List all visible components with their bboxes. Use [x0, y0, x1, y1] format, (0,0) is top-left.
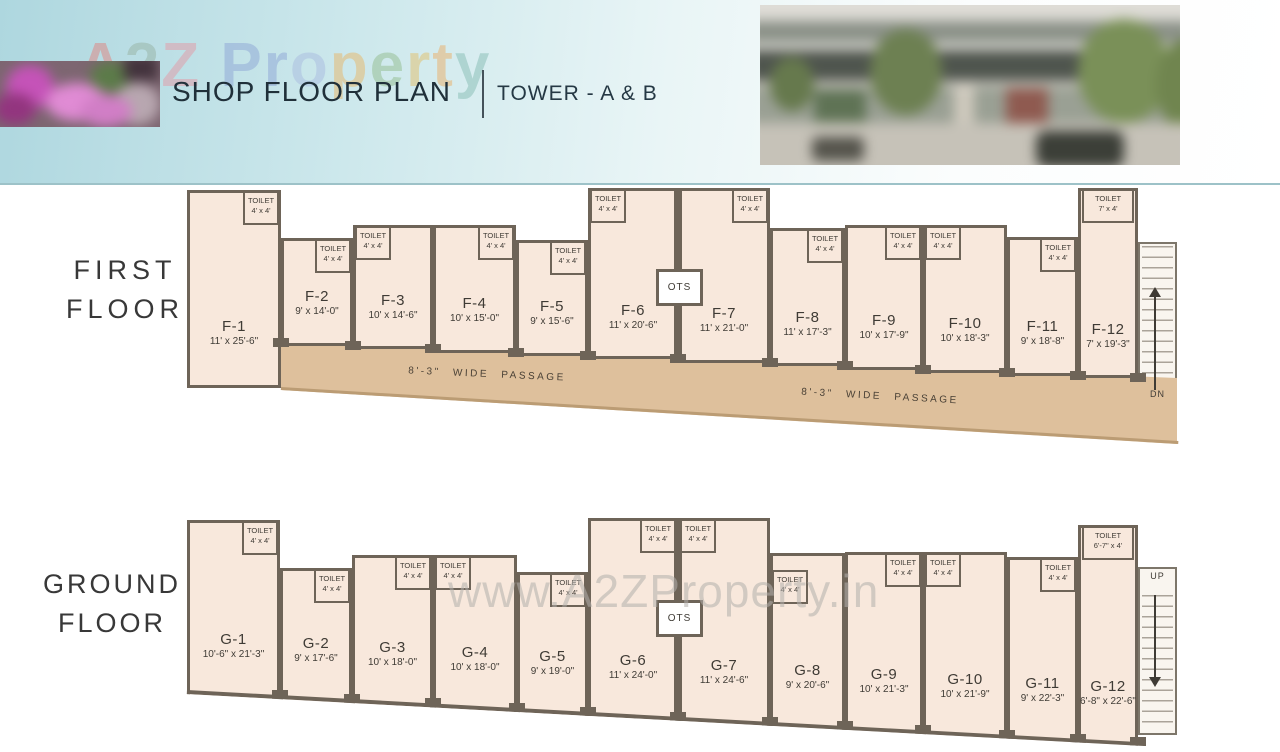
column-stub — [837, 361, 853, 370]
page-subtitle: TOWER - A & B — [497, 82, 658, 106]
stair-arrow-line — [1154, 296, 1156, 390]
column-stub — [508, 348, 524, 357]
stair-arrow-head — [1149, 287, 1161, 297]
floor-label-line: FIRST — [60, 251, 190, 290]
toilet-label: TOILET — [887, 231, 919, 241]
toilet-G-12: TOILET6'-7" x 4' — [1082, 526, 1134, 560]
flower-photo — [0, 61, 160, 127]
toilet-F-8: TOILET4' x 4' — [807, 229, 843, 263]
toilet-F-1: TOILET4' x 4' — [243, 191, 279, 225]
toilet-F-3: TOILET4' x 4' — [355, 226, 391, 260]
ots-shaft: OTS — [656, 269, 703, 306]
toilet-F-2: TOILET4' x 4' — [315, 239, 351, 273]
toilet-label: TOILET — [1084, 194, 1132, 204]
column-stub — [999, 368, 1015, 377]
toilet-label: TOILET — [245, 196, 277, 206]
toilet-label: TOILET — [927, 231, 959, 241]
photo-tree — [870, 29, 942, 115]
toilet-label: TOILET — [682, 524, 714, 534]
toilet-size: 4' x 4' — [734, 204, 766, 214]
toilet-label: TOILET — [480, 231, 512, 241]
toilet-size: 4' x 4' — [682, 534, 714, 544]
toilet-F-12: TOILET7' x 4' — [1082, 189, 1134, 223]
unit-label-F-12: F-127' x 19'-3" — [1053, 321, 1163, 350]
column-stub — [580, 351, 596, 360]
floor-label-line: FLOOR — [36, 604, 188, 643]
toilet-label: TOILET — [317, 244, 349, 254]
photo-car — [1036, 131, 1124, 165]
toilet-size: 4' x 4' — [927, 241, 959, 251]
toilet-label: TOILET — [1084, 531, 1132, 541]
toilet-label: TOILET — [887, 558, 919, 568]
header-band: A2Z Property SHOP FLOOR PLAN TOWER - A &… — [0, 0, 1280, 184]
title-divider — [482, 70, 484, 118]
toilet-G-1: TOILET4' x 4' — [242, 521, 278, 555]
toilet-F-9: TOILET4' x 4' — [885, 226, 921, 260]
toilet-label: TOILET — [397, 561, 429, 571]
floor-label-line: FLOOR — [60, 290, 190, 329]
column-stub — [915, 365, 931, 374]
toilet-F-11: TOILET4' x 4' — [1040, 238, 1076, 272]
floor-label-line: GROUND — [36, 565, 188, 604]
toilet-size: 4' x 4' — [552, 256, 584, 266]
building-photo-blur — [760, 5, 1180, 165]
page-title: SHOP FLOOR PLAN — [172, 76, 451, 108]
toilet-label: TOILET — [927, 558, 959, 568]
site-watermark: www.A2ZProperty.in — [448, 564, 879, 618]
column-stub — [762, 358, 778, 367]
toilet-size: 4' x 4' — [1042, 573, 1074, 583]
flower-blob — [0, 93, 36, 125]
toilet-label: TOILET — [552, 246, 584, 256]
toilet-size: 4' x 4' — [397, 571, 429, 581]
toilet-label: TOILET — [1042, 563, 1074, 573]
toilet-G-2: TOILET4' x 4' — [314, 569, 350, 603]
floor-label-ground: GROUND FLOOR — [36, 565, 188, 643]
photo-storefront-red — [1006, 88, 1048, 124]
flower-blob — [124, 61, 158, 81]
column-stub — [1070, 371, 1086, 380]
unit-label-G-12: G-126'-8" x 22'-6" — [1053, 678, 1163, 707]
toilet-label: TOILET — [244, 526, 276, 536]
toilet-G-10: TOILET4' x 4' — [925, 553, 961, 587]
toilet-label: TOILET — [734, 194, 766, 204]
toilet-label: TOILET — [357, 231, 389, 241]
toilet-F-4: TOILET4' x 4' — [478, 226, 514, 260]
toilet-size: 6'-7" x 4' — [1084, 541, 1132, 551]
toilet-label: TOILET — [642, 524, 674, 534]
column-stub — [273, 338, 289, 347]
ground-floor-plan: TOILET4' x 4'G-110'-6" x 21'-3"TOILET4' … — [185, 515, 1180, 749]
toilet-size: 4' x 4' — [642, 534, 674, 544]
toilet-size: 4' x 4' — [317, 254, 349, 264]
toilet-label: TOILET — [592, 194, 624, 204]
floor-label-first: FIRST FLOOR — [60, 251, 190, 329]
toilet-size: 7' x 4' — [1084, 204, 1132, 214]
toilet-size: 4' x 4' — [357, 241, 389, 251]
unit-dims: 7' x 19'-3" — [1053, 339, 1163, 350]
toilet-size: 4' x 4' — [480, 241, 512, 251]
toilet-size: 4' x 4' — [245, 206, 277, 216]
toilet-label: TOILET — [809, 234, 841, 244]
first-floor-plan: TOILET4' x 4'F-111' x 25'-6"TOILET4' x 4… — [185, 185, 1180, 460]
staircase — [1138, 567, 1177, 735]
toilet-size: 4' x 4' — [887, 568, 919, 578]
unit-id: F-12 — [1053, 321, 1163, 338]
photo-car — [812, 137, 864, 161]
column-stub — [425, 344, 441, 353]
toilet-size: 4' x 4' — [1042, 253, 1074, 263]
toilet-G-6: TOILET4' x 4' — [640, 519, 676, 553]
toilet-F-5: TOILET4' x 4' — [550, 241, 586, 275]
stair-arrow-line — [1154, 595, 1156, 678]
brand-letter: y — [455, 31, 491, 100]
column-stub — [1130, 373, 1146, 382]
stair-arrow-head — [1149, 677, 1161, 687]
building-photo — [760, 5, 1180, 165]
toilet-label: TOILET — [1042, 243, 1074, 253]
stair-direction-label: UP — [1138, 571, 1177, 581]
toilet-G-7: TOILET4' x 4' — [680, 519, 716, 553]
toilet-F-10: TOILET4' x 4' — [925, 226, 961, 260]
flower-photo-blur — [0, 61, 160, 127]
flower-blob — [80, 95, 132, 127]
stair-direction-label: DN — [1138, 389, 1177, 399]
toilet-size: 4' x 4' — [927, 568, 959, 578]
toilet-size: 4' x 4' — [809, 244, 841, 254]
toilet-F-6: TOILET4' x 4' — [590, 189, 626, 223]
stair-treads — [1142, 595, 1173, 731]
toilet-size: 4' x 4' — [316, 584, 348, 594]
toilet-size: 4' x 4' — [592, 204, 624, 214]
unit-dims: 6'-8" x 22'-6" — [1053, 696, 1163, 707]
photo-storefront-green — [814, 90, 866, 122]
toilet-size: 4' x 4' — [244, 536, 276, 546]
photo-column — [954, 86, 974, 124]
toilet-size: 4' x 4' — [887, 241, 919, 251]
unit-id: F-1 — [179, 318, 289, 335]
toilet-F-7: TOILET4' x 4' — [732, 189, 768, 223]
column-stub — [345, 341, 361, 350]
unit-id: G-12 — [1053, 678, 1163, 695]
toilet-label: TOILET — [316, 574, 348, 584]
toilet-G-11: TOILET4' x 4' — [1040, 558, 1076, 592]
photo-tree — [1078, 19, 1170, 123]
photo-tree — [770, 57, 814, 111]
toilet-G-9: TOILET4' x 4' — [885, 553, 921, 587]
toilet-G-3: TOILET4' x 4' — [395, 556, 431, 590]
